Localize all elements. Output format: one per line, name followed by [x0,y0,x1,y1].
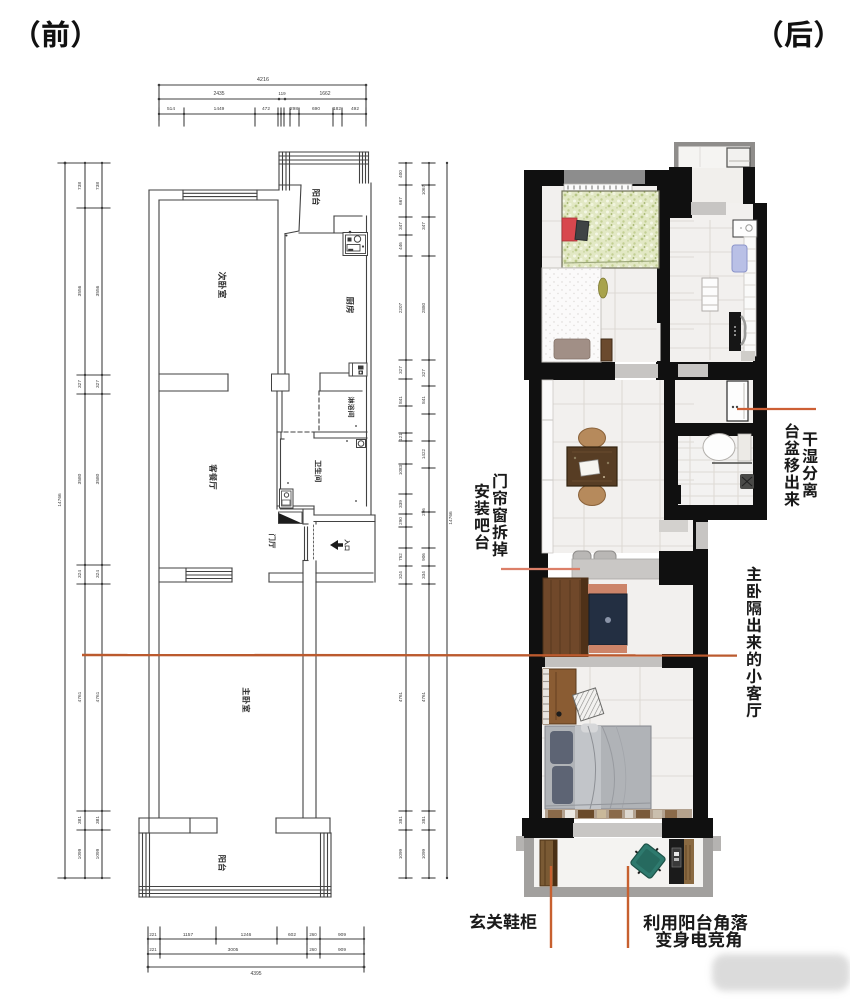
svg-text:841: 841 [398,396,403,404]
svg-text:4216: 4216 [257,77,269,83]
svg-text:221: 221 [149,947,157,952]
svg-text:1099: 1099 [95,848,101,859]
svg-text:1157: 1157 [183,932,194,938]
svg-text:14766: 14766 [448,511,454,525]
svg-text:738: 738 [95,182,101,190]
svg-text:290: 290 [398,517,403,525]
svg-text:3556: 3556 [77,285,83,296]
svg-text:327: 327 [421,369,426,377]
svg-text:1246: 1246 [241,932,252,938]
svg-text:841: 841 [421,396,426,404]
svg-text:602: 602 [288,932,296,938]
svg-text:752: 752 [398,553,403,561]
svg-text:324: 324 [95,570,101,578]
svg-text:4395: 4395 [250,971,261,977]
svg-text:2207: 2207 [398,302,403,313]
svg-text:4761: 4761 [421,691,426,702]
svg-text:324: 324 [77,570,83,578]
svg-text:446: 446 [398,242,403,250]
svg-text:3580: 3580 [95,473,101,484]
svg-text:400: 400 [398,170,403,178]
svg-text:1099: 1099 [398,848,403,859]
svg-text:327: 327 [95,380,101,388]
svg-text:1422: 1422 [421,448,426,459]
svg-text:1099: 1099 [77,848,83,859]
svg-text:1083: 1083 [398,464,403,475]
svg-text:3556: 3556 [95,285,101,296]
svg-text:119: 119 [278,91,286,96]
svg-text:347: 347 [398,222,403,230]
svg-text:1449: 1449 [214,106,225,112]
svg-text:334: 334 [421,571,426,579]
svg-text:381: 381 [77,816,83,824]
svg-text:514: 514 [167,106,175,112]
svg-text:3580: 3580 [77,473,83,484]
svg-text:182: 182 [333,106,341,112]
svg-text:327: 327 [77,380,83,388]
svg-text:3005: 3005 [228,947,239,953]
svg-text:4761: 4761 [398,691,403,702]
svg-text:381: 381 [95,816,101,824]
svg-text:339: 339 [398,500,403,508]
svg-text:909: 909 [338,932,346,938]
svg-text:690: 690 [312,106,320,112]
svg-text:1067: 1067 [421,184,426,195]
svg-text:2880: 2880 [421,302,426,313]
svg-text:1662: 1662 [319,91,330,97]
svg-text:296: 296 [421,508,426,516]
svg-text:298: 298 [290,106,298,112]
svg-text:324: 324 [398,571,403,579]
svg-text:1099: 1099 [421,848,426,859]
svg-text:4761: 4761 [77,691,83,702]
svg-text:381: 381 [398,816,403,824]
svg-text:472: 472 [262,106,270,112]
svg-text:2435: 2435 [213,91,224,97]
svg-text:260: 260 [309,932,317,937]
svg-text:327: 327 [398,366,403,374]
svg-text:906: 906 [421,553,426,561]
svg-text:738: 738 [77,182,83,190]
svg-text:381: 381 [421,816,426,824]
svg-text:221: 221 [149,932,157,937]
svg-text:492: 492 [351,106,359,112]
svg-text:260: 260 [309,947,317,952]
svg-text:4761: 4761 [95,691,101,702]
svg-text:909: 909 [338,947,346,953]
svg-text:121: 121 [398,433,403,441]
svg-text:347: 347 [421,222,426,230]
svg-text:14766: 14766 [57,493,63,507]
svg-text:667: 667 [398,197,403,205]
